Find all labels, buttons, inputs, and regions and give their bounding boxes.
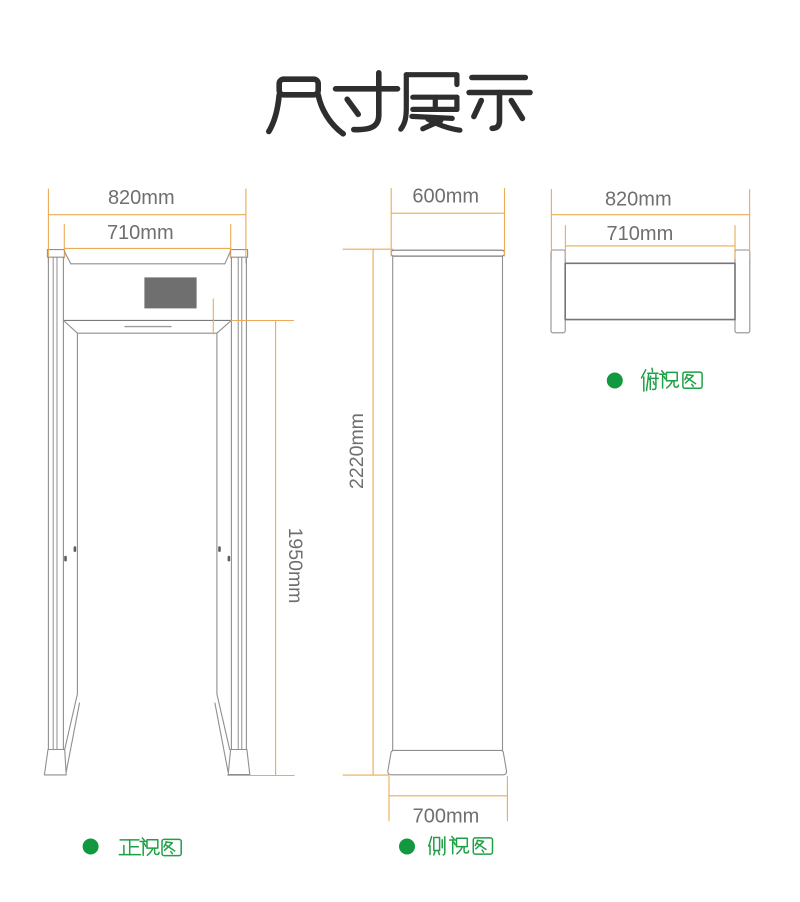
svg-text:710mm: 710mm bbox=[607, 223, 674, 245]
svg-text:700mm: 700mm bbox=[413, 805, 480, 827]
svg-text:820mm: 820mm bbox=[108, 187, 175, 209]
svg-text:600mm: 600mm bbox=[412, 185, 479, 207]
svg-text:1950mm: 1950mm bbox=[284, 528, 306, 604]
svg-text:710mm: 710mm bbox=[107, 222, 174, 244]
svg-text:2220mm: 2220mm bbox=[346, 413, 368, 489]
svg-text:820mm: 820mm bbox=[605, 188, 672, 210]
